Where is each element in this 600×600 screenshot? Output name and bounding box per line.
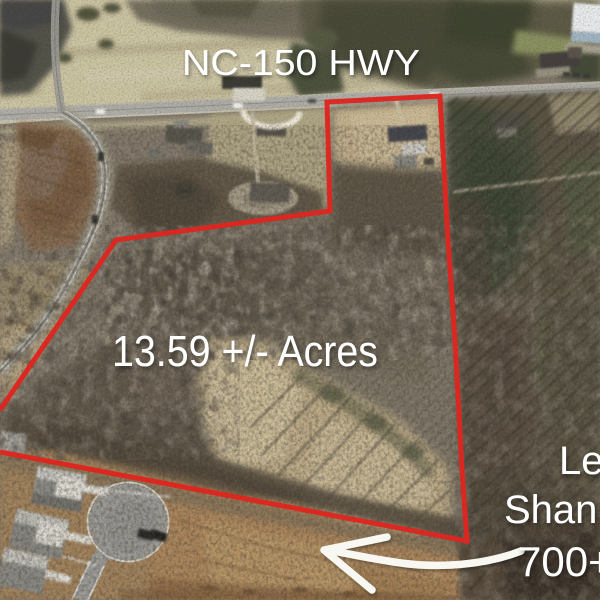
svg-text:Shanno: Shanno — [504, 488, 600, 532]
svg-text:Lenn: Lenn — [559, 439, 600, 483]
svg-text:13.59 +/- Acres: 13.59 +/- Acres — [112, 327, 378, 376]
svg-text:700+: 700+ — [518, 538, 600, 585]
svg-text:NC-150 HWY: NC-150 HWY — [182, 42, 420, 83]
